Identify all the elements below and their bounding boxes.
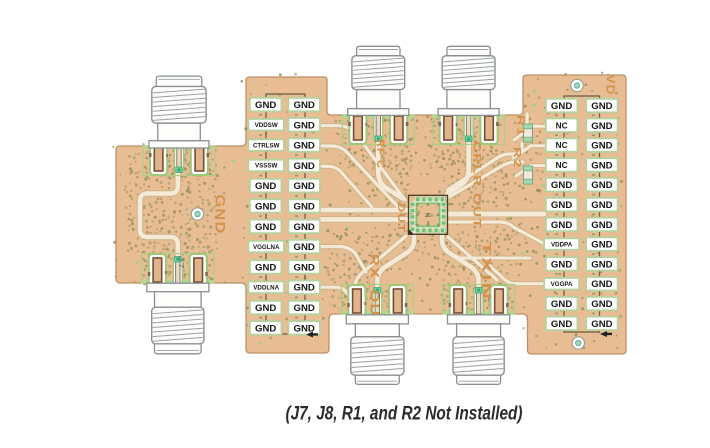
- svg-text:GND: GND: [255, 202, 276, 213]
- svg-text:GND: GND: [551, 220, 572, 231]
- svg-text:(J7, J8, R1, and R2 Not Instal: (J7, J8, R1, and R2 Not Installed): [286, 403, 523, 425]
- svg-text:GND: GND: [294, 242, 315, 253]
- svg-text:GND: GND: [294, 202, 315, 213]
- svg-text:GND: GND: [551, 200, 572, 211]
- svg-text:VGGLNA: VGGLNA: [253, 244, 280, 251]
- svg-text:GND: GND: [591, 160, 612, 171]
- svg-text:GND: GND: [591, 141, 612, 152]
- svg-text:VDDPA: VDDPA: [551, 241, 573, 248]
- svg-text:VDDSW: VDDSW: [255, 122, 278, 129]
- svg-text:CTRLSW: CTRLSW: [253, 142, 280, 149]
- svg-text:GND: GND: [551, 180, 572, 191]
- svg-text:GND: GND: [213, 195, 229, 235]
- svg-text:GND: GND: [255, 262, 276, 273]
- svg-text:R1: R1: [515, 115, 526, 137]
- svg-text:GND: GND: [294, 262, 315, 273]
- svg-text:NC: NC: [556, 121, 568, 130]
- svg-text:TXIN: TXIN: [480, 241, 494, 301]
- svg-text:GND: GND: [591, 101, 612, 112]
- svg-text:GND: GND: [255, 222, 276, 233]
- svg-text:VD: VD: [604, 75, 618, 96]
- svg-text:GND: GND: [591, 299, 612, 310]
- svg-text:VDDLNA: VDDLNA: [253, 284, 279, 291]
- svg-text:GND: GND: [255, 100, 276, 111]
- svg-text:GND: GND: [551, 319, 572, 330]
- svg-text:GND: GND: [294, 222, 315, 233]
- svg-text:GND: GND: [551, 299, 572, 310]
- svg-text:GND: GND: [591, 319, 612, 330]
- svg-text:DUT: DUT: [395, 203, 407, 233]
- svg-text:J7: J7: [177, 256, 184, 270]
- svg-text:GND: GND: [294, 181, 315, 192]
- svg-text:GND: GND: [591, 200, 612, 211]
- svg-text:GND: GND: [255, 303, 276, 314]
- svg-text:GND: GND: [591, 279, 612, 290]
- svg-text:GND: GND: [294, 120, 315, 131]
- svg-text:R2: R2: [511, 147, 522, 169]
- svg-text:CPLR OUT: CPLR OUT: [471, 141, 483, 229]
- svg-text:VSSSW: VSSSW: [255, 163, 278, 170]
- svg-text:GND: GND: [294, 141, 315, 152]
- svg-text:GND: GND: [591, 259, 612, 270]
- svg-text:GND: GND: [255, 181, 276, 192]
- svg-text:NC: NC: [556, 141, 568, 150]
- svg-text:RF C: RF C: [374, 139, 386, 169]
- svg-text:VGGPA: VGGPA: [551, 281, 573, 288]
- svg-text:GND: GND: [255, 323, 276, 334]
- svg-text:N: N: [423, 212, 430, 217]
- svg-text:GND: GND: [591, 220, 612, 231]
- svg-text:GND: GND: [294, 303, 315, 314]
- svg-text:GND: GND: [294, 161, 315, 172]
- svg-text:GND: GND: [294, 283, 315, 294]
- svg-text:GND: GND: [591, 121, 612, 132]
- svg-text:GND: GND: [591, 180, 612, 191]
- svg-text:GND: GND: [551, 101, 572, 112]
- svg-text:GND: GND: [551, 259, 572, 270]
- svg-text:NC: NC: [556, 161, 568, 170]
- svg-text:GND: GND: [294, 100, 315, 111]
- svg-text:GND: GND: [591, 240, 612, 251]
